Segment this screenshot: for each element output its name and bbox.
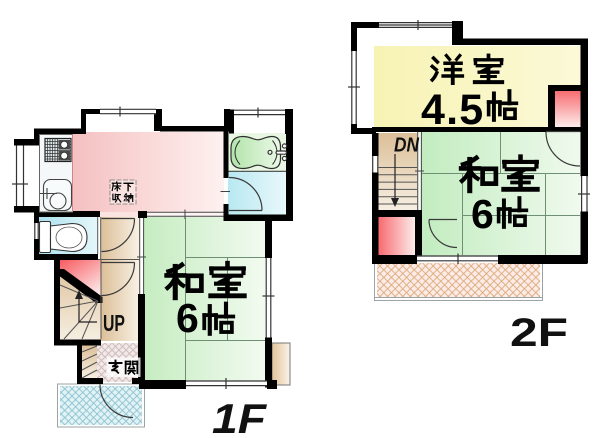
svg-text:DN: DN [394,135,419,157]
svg-text:6: 6 [471,191,494,237]
svg-text:4.5: 4.5 [421,86,484,134]
svg-text:1F: 1F [212,395,267,438]
svg-text:6: 6 [176,295,199,341]
svg-text:UP: UP [103,310,125,336]
svg-text:2F: 2F [510,311,568,355]
